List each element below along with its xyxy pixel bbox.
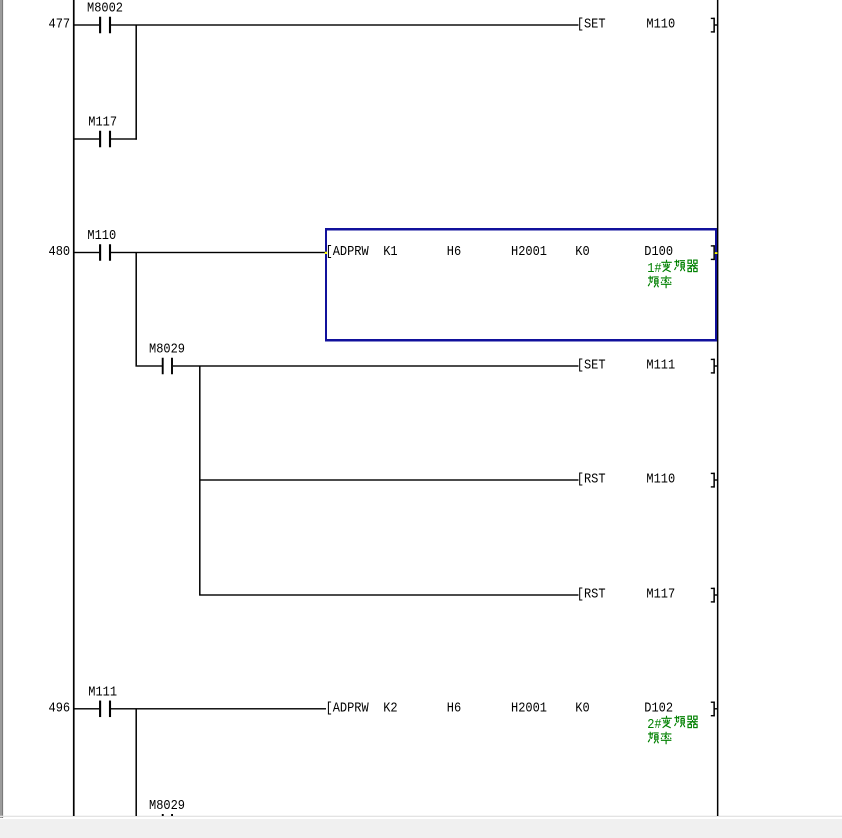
svg-text:[SET: [SET [577,357,606,373]
svg-text:[ADPRW: [ADPRW [326,243,369,259]
svg-text:M110: M110 [87,227,116,243]
svg-text:[ADPRW: [ADPRW [326,699,369,715]
svg-text:[RST: [RST [577,471,606,487]
svg-text:K2: K2 [383,699,397,715]
svg-text:M117: M117 [88,114,117,130]
svg-text:M8029: M8029 [149,797,185,813]
svg-text:M8029: M8029 [149,341,185,357]
svg-text:477: 477 [49,16,71,32]
svg-text:H2001: H2001 [511,243,547,259]
svg-text:M110: M110 [646,16,675,32]
svg-text:496: 496 [49,699,71,715]
svg-text:M111: M111 [88,683,117,699]
svg-text:2#: 2# [647,716,662,732]
svg-text:480: 480 [49,243,71,259]
svg-text:M8002: M8002 [87,0,123,16]
svg-text:K0: K0 [575,699,590,715]
svg-text:[RST: [RST [577,586,606,602]
svg-text:H6: H6 [447,699,462,715]
svg-text:K0: K0 [575,243,590,259]
svg-text:H6: H6 [447,243,462,259]
svg-text:M111: M111 [646,357,675,373]
svg-text:K1: K1 [383,243,398,259]
svg-text:H2001: H2001 [511,699,547,715]
svg-text:[SET: [SET [577,16,606,32]
svg-text:1#: 1# [647,260,662,276]
svg-text:M110: M110 [646,471,675,487]
svg-text:D100: D100 [644,243,673,259]
svg-text:M117: M117 [646,586,675,602]
svg-text:D102: D102 [644,699,673,715]
